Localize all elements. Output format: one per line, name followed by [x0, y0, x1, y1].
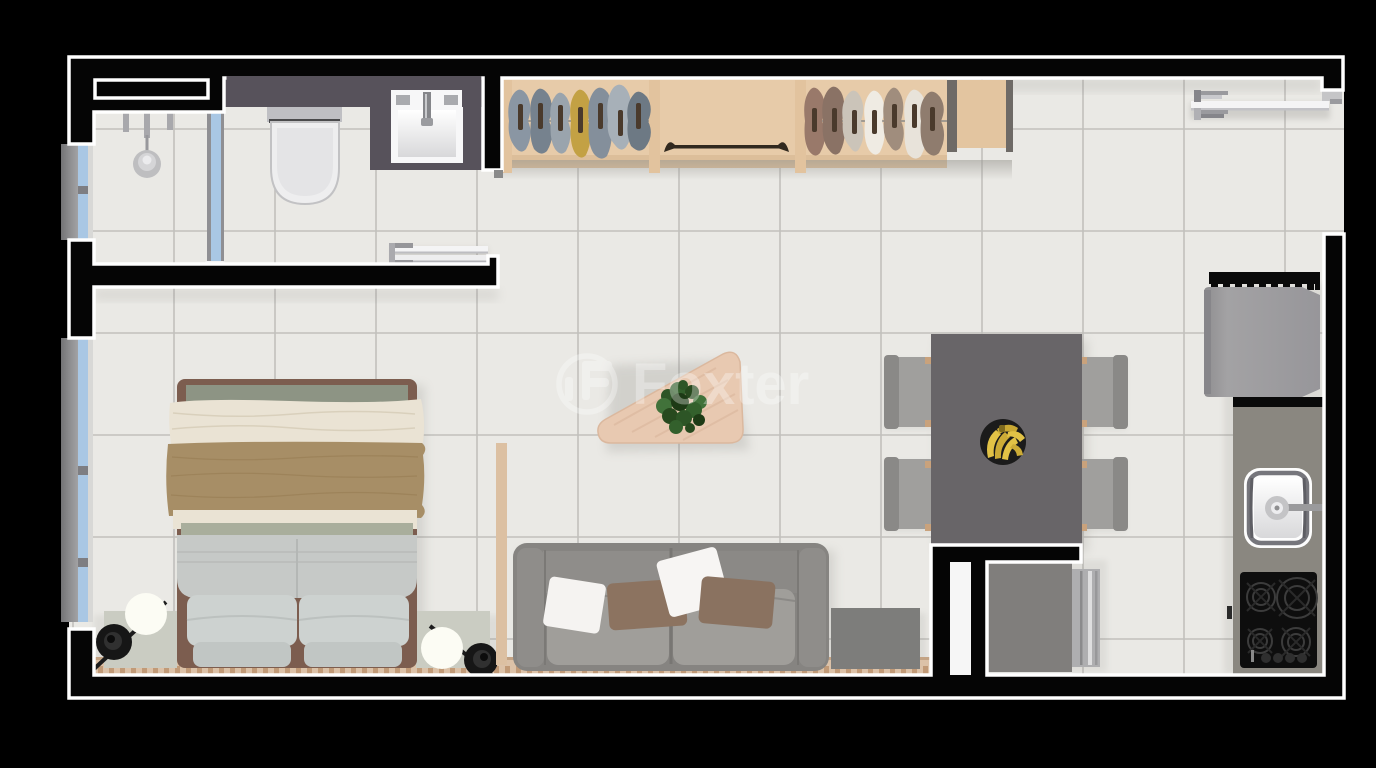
svg-text:Foxter: Foxter — [632, 352, 809, 417]
